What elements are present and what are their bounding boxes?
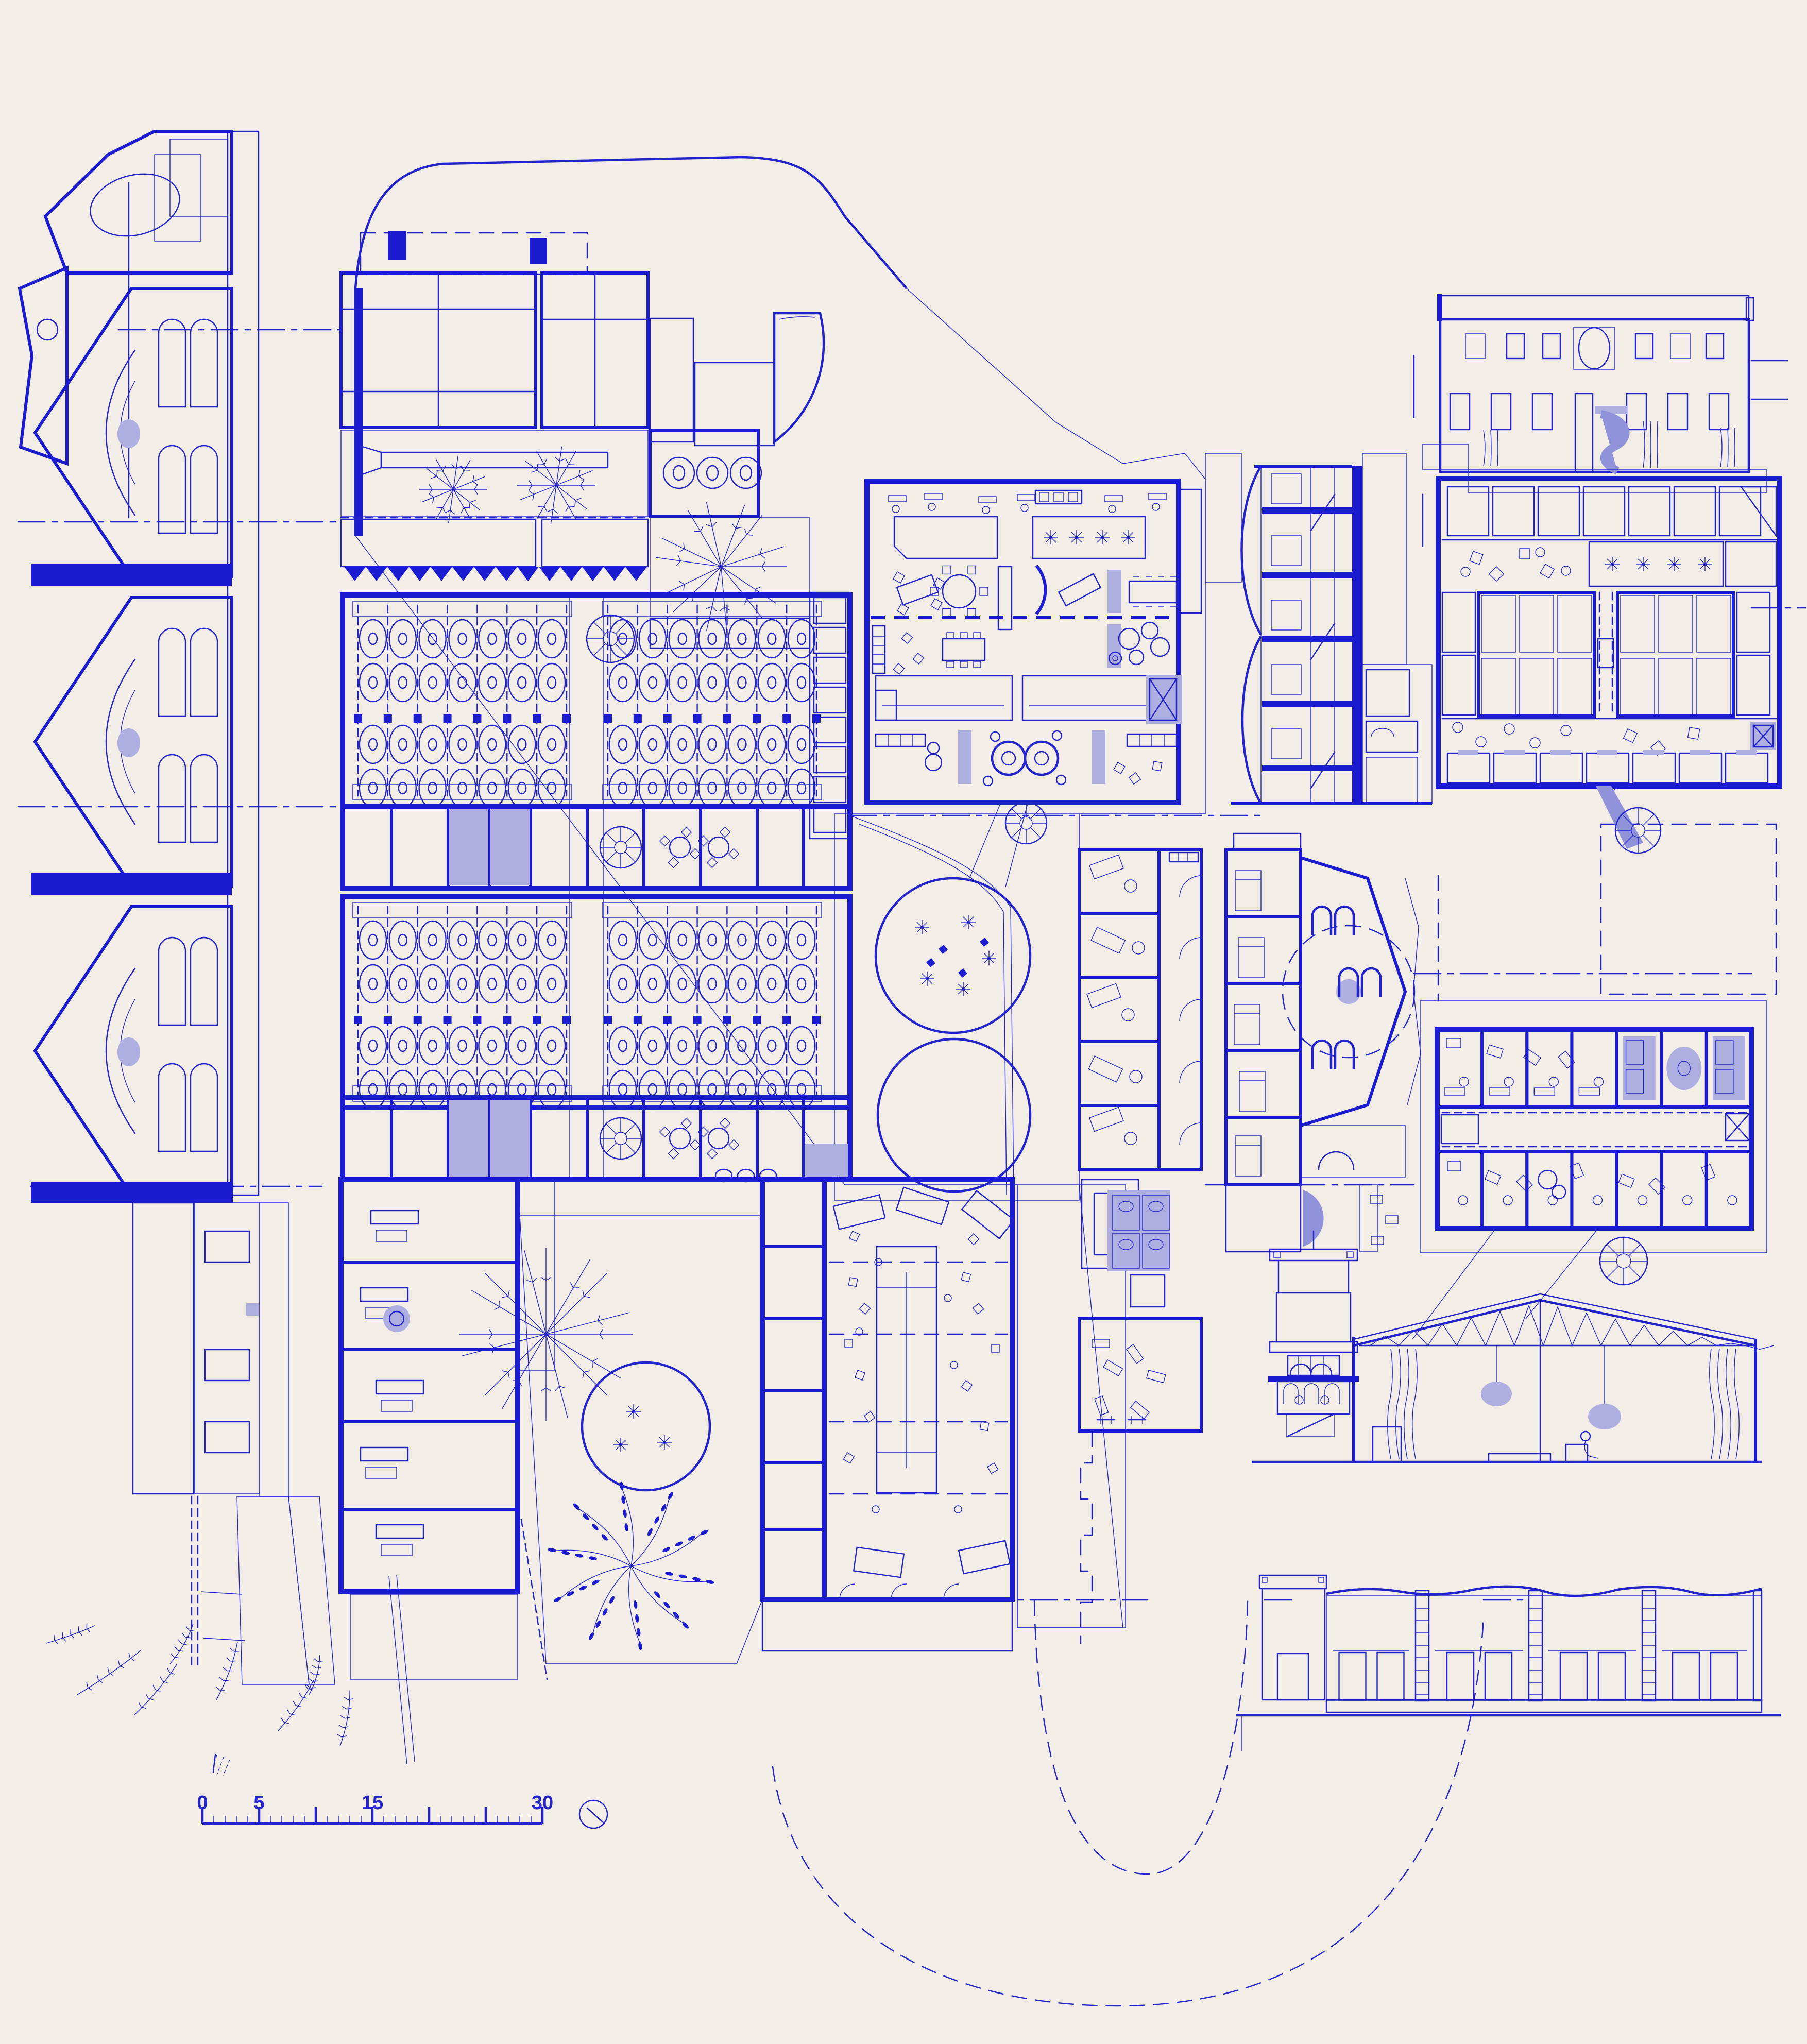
drawing-canvas: 0 5 15 30 bbox=[0, 0, 1807, 2044]
paper-background bbox=[0, 0, 1807, 2044]
scale-label-0: 0 bbox=[197, 1792, 208, 1814]
blueprint-sheet: 0 5 15 30 bbox=[0, 0, 1807, 2044]
scale-label-5: 5 bbox=[253, 1792, 264, 1814]
scale-label-15: 15 bbox=[362, 1792, 383, 1814]
scale-label-30: 30 bbox=[532, 1792, 553, 1814]
